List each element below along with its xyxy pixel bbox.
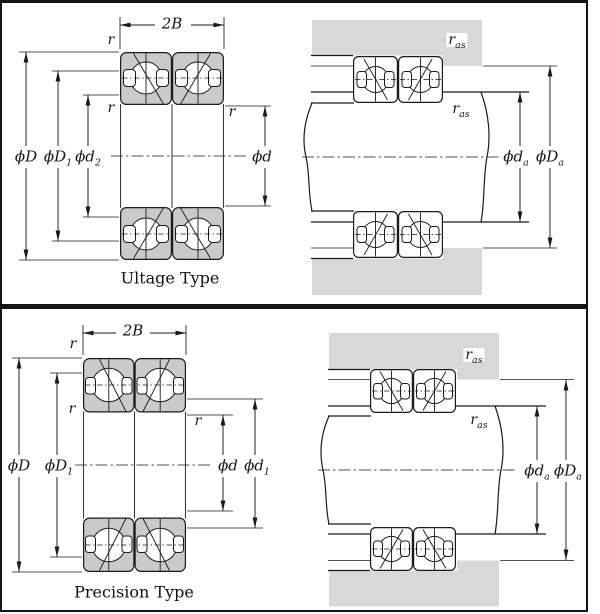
precision-drawing — [0, 310, 600, 614]
dim-label-bore-diameter: ϕd — [252, 150, 272, 165]
frame-bottom — [0, 610, 588, 613]
dim-label-shaft-fillet-ras: ras — [452, 102, 469, 116]
dim-label-chamfer-r-bore: r — [229, 105, 236, 119]
dim-label-d2-diameter: ϕd2 — [75, 150, 101, 165]
precision-type-title: Precision Type — [74, 583, 194, 602]
dim-label-d1-diameter: ϕD1 — [45, 459, 73, 474]
dim-label-shaft-fillet-ras: ras — [470, 413, 487, 427]
dim-label-housing-abutment-Da: ϕDa — [536, 150, 564, 165]
bearing-dimension-diagram: 2B r r r ϕD ϕD1 ϕd2 ϕd ras ras ϕda ϕDa U… — [0, 0, 600, 614]
dim-label-chamfer-r-front: r — [108, 101, 115, 115]
dim-label-width-2b: 2B — [123, 324, 144, 339]
dim-label-housing-fillet-ras: ras — [463, 348, 484, 362]
dim-label-chamfer-r-front: r — [69, 402, 76, 416]
dim-label-housing-abutment-Da: ϕDa — [554, 464, 582, 479]
dim-label-shaft-abutment-da: ϕda — [503, 150, 529, 165]
frame-top — [0, 0, 588, 3]
dim-label-chamfer-r-bore: r — [195, 414, 202, 428]
dim-label-outer-diameter: ϕD — [15, 150, 37, 165]
ultage-type-title: Ultage Type — [121, 269, 220, 288]
dim-label-chamfer-r-outer: r — [108, 33, 115, 47]
dim-label-inner-d1-diameter: ϕd1 — [244, 459, 270, 474]
dim-label-housing-fillet-ras: ras — [446, 33, 467, 47]
dim-label-chamfer-r-outer: r — [70, 337, 77, 351]
dim-label-shaft-abutment-da: ϕda — [524, 464, 550, 479]
panel-divider — [0, 304, 588, 309]
ultage-section-view — [19, 17, 271, 260]
dim-label-bore-diameter: ϕd — [218, 459, 238, 474]
precision-section-view — [12, 325, 263, 572]
dim-label-outer-diameter: ϕD — [8, 459, 30, 474]
dim-label-width-2b: 2B — [162, 17, 183, 32]
dim-label-d1-diameter: ϕD1 — [44, 150, 72, 165]
